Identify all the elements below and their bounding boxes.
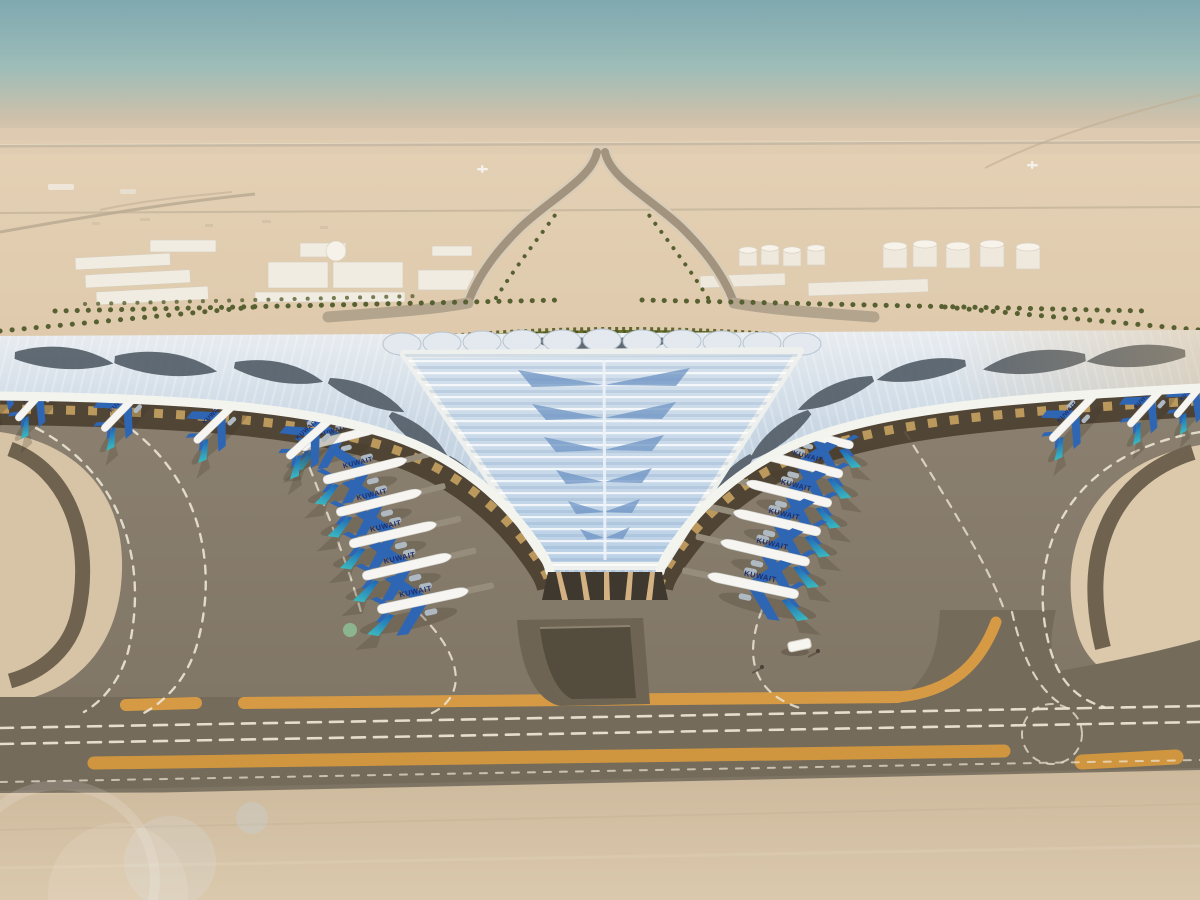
sky xyxy=(0,0,1200,150)
terminal-facade xyxy=(542,572,668,600)
airport-rendering: KUWAIT KUWAIT KUWAIT xyxy=(0,0,1200,900)
dome-building xyxy=(326,241,346,261)
